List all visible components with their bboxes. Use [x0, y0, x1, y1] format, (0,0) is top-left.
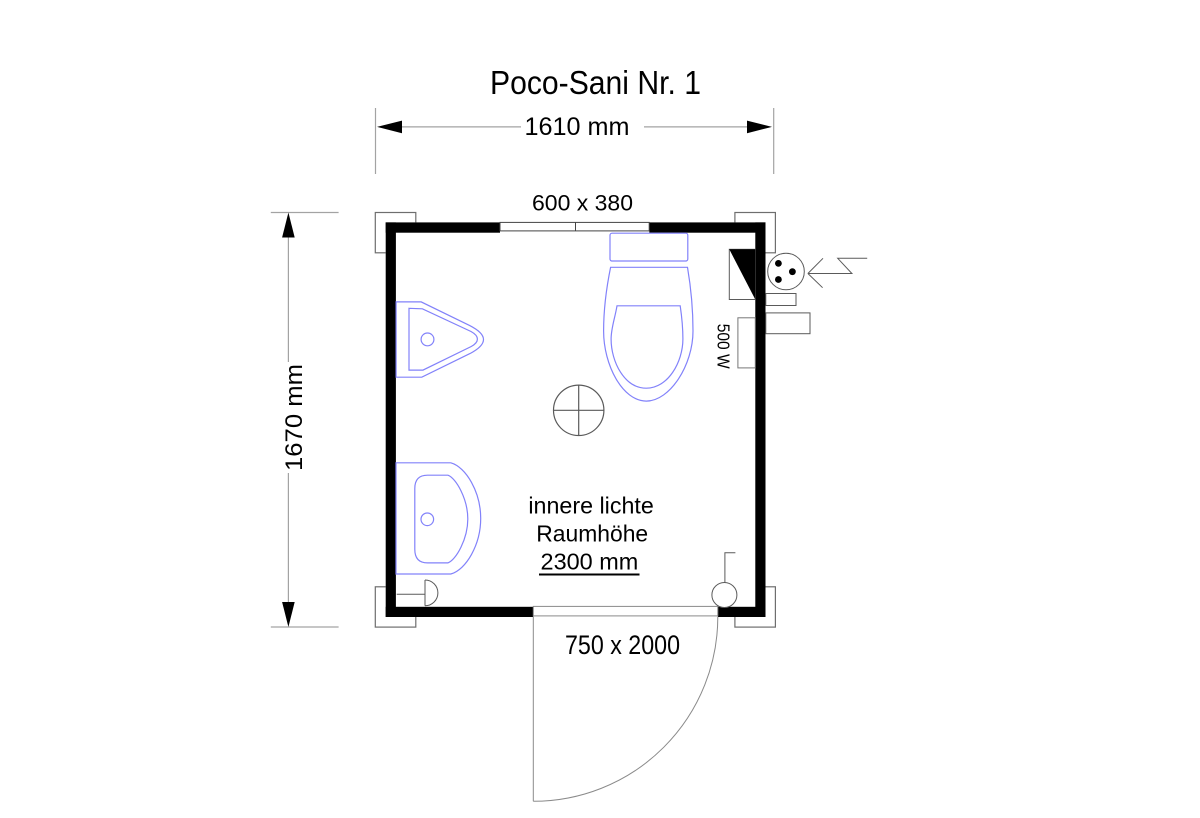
svg-text:2300 mm: 2300 mm: [541, 548, 639, 574]
svg-text:600 x 380: 600 x 380: [532, 191, 633, 216]
svg-text:500 W: 500 W: [714, 324, 734, 369]
svg-text:750 x 2000: 750 x 2000: [565, 630, 680, 660]
svg-text:innere lichte: innere lichte: [528, 492, 653, 518]
svg-text:Raumhöhe: Raumhöhe: [536, 521, 648, 547]
svg-text:Poco-Sani Nr. 1: Poco-Sani Nr. 1: [490, 64, 701, 101]
svg-text:1670 mm: 1670 mm: [281, 364, 308, 471]
svg-text:1610 mm: 1610 mm: [525, 114, 630, 141]
